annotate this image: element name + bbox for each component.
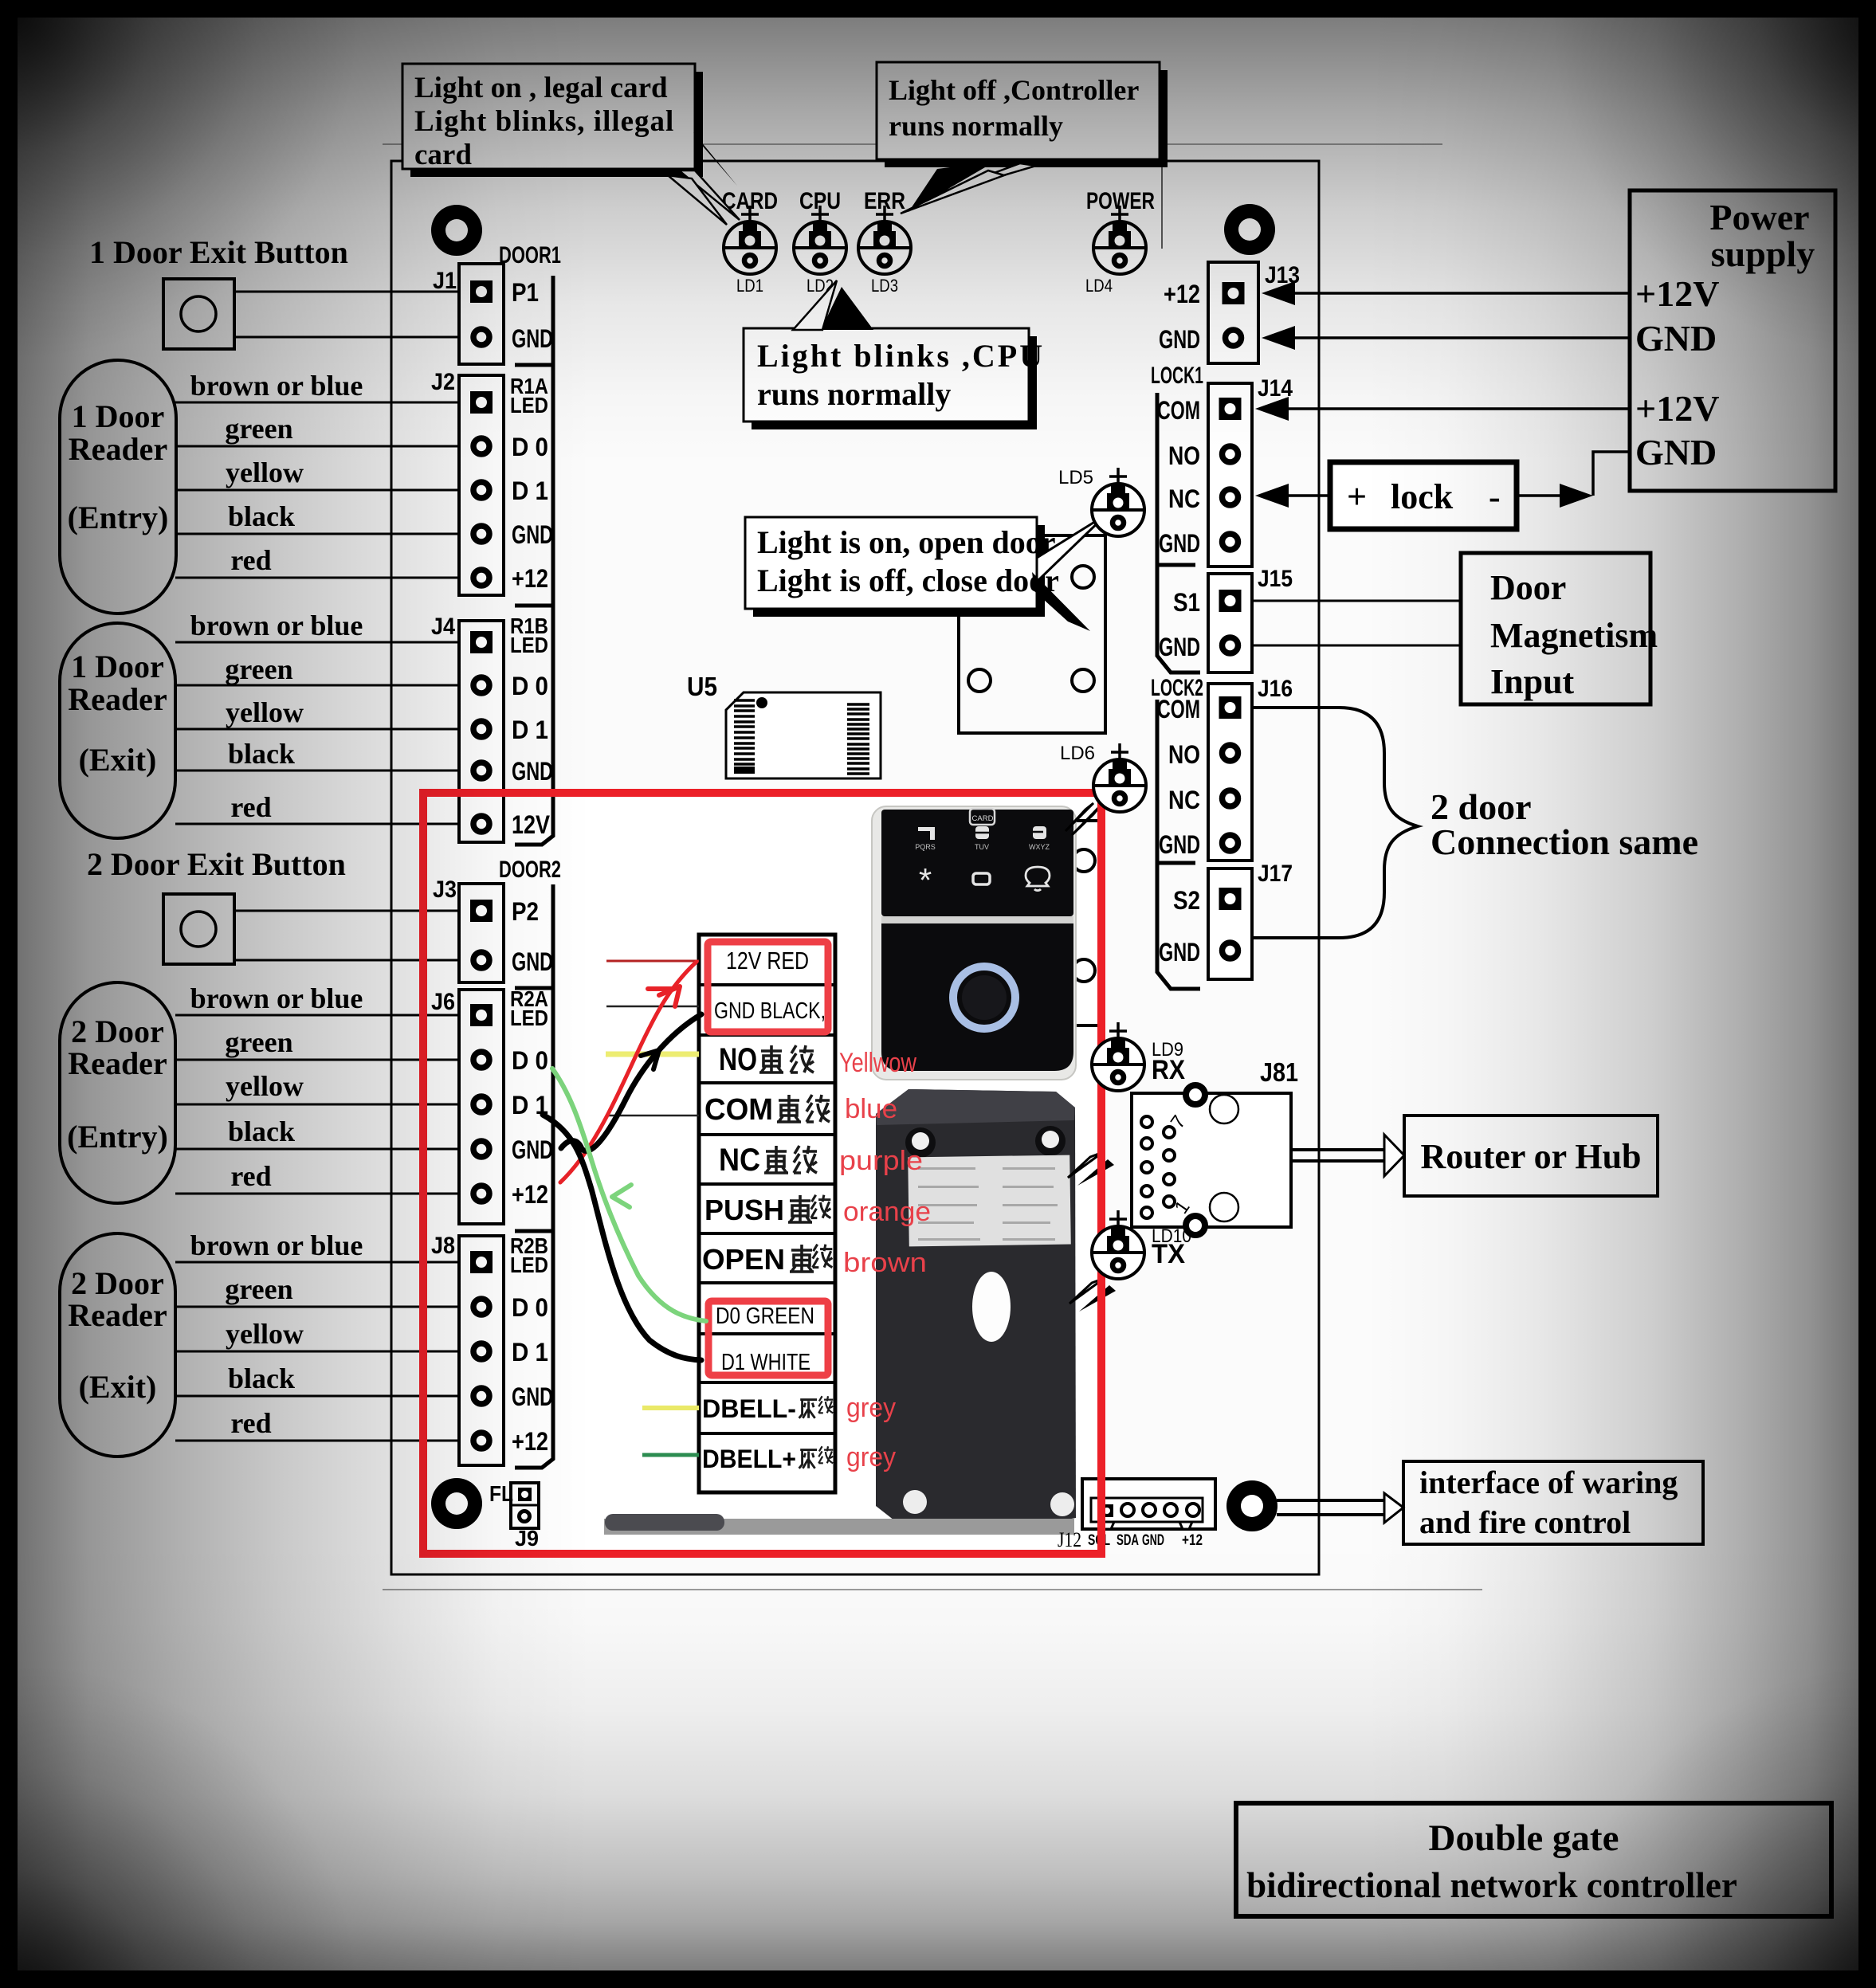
- svg-text:DOOR2: DOOR2: [499, 857, 561, 883]
- svg-text:TUV: TUV: [975, 843, 989, 851]
- svg-text:red: red: [230, 1160, 271, 1192]
- svg-text:yellow: yellow: [226, 1318, 304, 1350]
- svg-text:green: green: [225, 1026, 292, 1058]
- svg-text:GND: GND: [1635, 318, 1717, 359]
- svg-text:GND: GND: [1159, 938, 1200, 967]
- svg-text:brown or blue: brown or blue: [190, 610, 363, 641]
- svg-text:LOCK1: LOCK1: [1151, 363, 1203, 389]
- svg-text:Connection same: Connection same: [1431, 821, 1698, 862]
- svg-text:Reader: Reader: [68, 1297, 167, 1333]
- svg-text:+12: +12: [512, 564, 548, 593]
- svg-text:J6: J6: [431, 989, 455, 1015]
- svg-text:FL: FL: [489, 1481, 513, 1506]
- svg-text:NC: NC: [719, 1143, 760, 1178]
- svg-text:GND: GND: [512, 1382, 553, 1411]
- svg-text:GND: GND: [1142, 1532, 1164, 1549]
- svg-text:Light off ,Controller: Light off ,Controller: [889, 74, 1139, 106]
- svg-text:2 Door: 2 Door: [71, 1265, 164, 1301]
- svg-text:Magnetism: Magnetism: [1490, 616, 1658, 655]
- svg-text:PQRS: PQRS: [915, 843, 936, 851]
- svg-text:1 Door Exit Button: 1 Door Exit Button: [89, 234, 348, 270]
- svg-text:black: black: [228, 500, 295, 532]
- svg-text:LED: LED: [510, 1253, 548, 1277]
- svg-text:RX: RX: [1152, 1055, 1185, 1085]
- svg-text:black: black: [228, 738, 295, 770]
- svg-text:black: black: [228, 1363, 295, 1394]
- svg-text:P2: P2: [512, 897, 539, 926]
- svg-text:GND: GND: [1159, 529, 1200, 558]
- svg-text:LD1: LD1: [736, 276, 763, 296]
- svg-text:WXYZ: WXYZ: [1029, 843, 1050, 851]
- svg-text:Light blinks, illegal: Light blinks, illegal: [414, 105, 674, 138]
- svg-text:J1: J1: [433, 268, 457, 294]
- svg-text:green: green: [225, 1273, 292, 1305]
- svg-text:Reader: Reader: [69, 431, 167, 467]
- svg-text:yellow: yellow: [226, 696, 304, 728]
- svg-text:COM: COM: [704, 1093, 773, 1127]
- svg-text:black: black: [228, 1116, 295, 1147]
- svg-text:LED: LED: [510, 1006, 548, 1030]
- svg-text:2 Door Exit Button: 2 Door Exit Button: [87, 846, 346, 882]
- svg-text:+12: +12: [512, 1180, 548, 1209]
- svg-text:J12: J12: [1058, 1528, 1081, 1551]
- svg-text:+12V: +12V: [1635, 273, 1719, 314]
- svg-text:GND: GND: [512, 947, 553, 976]
- svg-text:blue: blue: [845, 1094, 897, 1124]
- svg-text:+12V: +12V: [1635, 388, 1719, 429]
- svg-text:J16: J16: [1258, 676, 1293, 702]
- svg-text:12V: 12V: [512, 810, 551, 839]
- svg-text:DOOR1: DOOR1: [499, 242, 561, 269]
- svg-text:GND: GND: [512, 1135, 553, 1164]
- svg-text:grey: grey: [846, 1393, 896, 1423]
- svg-text:red: red: [230, 791, 271, 823]
- svg-text:+: +: [1347, 477, 1367, 516]
- svg-text:+12: +12: [1182, 1532, 1203, 1549]
- svg-text:DBELL+: DBELL+: [702, 1445, 796, 1473]
- svg-text:OPEN: OPEN: [702, 1243, 785, 1276]
- svg-text:D0 GREEN: D0 GREEN: [716, 1304, 814, 1329]
- svg-text:runs normally: runs normally: [889, 110, 1063, 142]
- svg-text:J17: J17: [1258, 861, 1293, 887]
- svg-text:S2: S2: [1173, 886, 1200, 915]
- svg-text:supply: supply: [1711, 233, 1815, 274]
- svg-text:D 0: D 0: [512, 1293, 548, 1322]
- svg-text:J4: J4: [431, 614, 455, 640]
- svg-text:purple: purple: [839, 1146, 923, 1176]
- svg-text:Light is off, close door: Light is off, close door: [757, 563, 1059, 598]
- svg-text:Light is on, open door: Light is on, open door: [757, 524, 1056, 560]
- svg-text:Double gate: Double gate: [1429, 1817, 1619, 1859]
- svg-text:NO: NO: [1168, 740, 1200, 769]
- svg-text:LED: LED: [510, 633, 548, 657]
- svg-text:card: card: [414, 139, 472, 171]
- svg-text:LED: LED: [510, 393, 548, 418]
- svg-text:GND BLACK,: GND BLACK,: [714, 998, 826, 1024]
- svg-text:2 Door: 2 Door: [71, 1014, 164, 1049]
- svg-text:Reader: Reader: [68, 1045, 167, 1081]
- svg-text:SDA: SDA: [1117, 1532, 1139, 1549]
- svg-text:Reader: Reader: [68, 681, 167, 717]
- svg-text:D 1: D 1: [512, 476, 548, 505]
- svg-text:brown or blue: brown or blue: [190, 370, 363, 402]
- svg-text:LD3: LD3: [871, 276, 898, 296]
- svg-text:COM: COM: [1157, 695, 1200, 723]
- svg-text:TX: TX: [1152, 1239, 1185, 1269]
- svg-text:*: *: [919, 861, 932, 899]
- svg-text:NO: NO: [1168, 441, 1200, 470]
- svg-text:green: green: [225, 653, 292, 685]
- svg-text:J2: J2: [431, 369, 455, 395]
- svg-text:D 0: D 0: [512, 1046, 548, 1075]
- svg-text:1 Door: 1 Door: [71, 649, 164, 684]
- svg-text:brown or blue: brown or blue: [190, 1229, 363, 1261]
- svg-text:green: green: [225, 413, 292, 445]
- svg-text:bidirectional network controll: bidirectional network controller: [1246, 1865, 1737, 1905]
- svg-text:GND: GND: [1159, 633, 1200, 661]
- svg-text:-: -: [1489, 477, 1501, 516]
- svg-text:(Entry): (Entry): [68, 500, 169, 535]
- svg-text:Input: Input: [1490, 662, 1575, 701]
- svg-text:1 Door: 1 Door: [72, 398, 165, 434]
- svg-text:D1 WHITE: D1 WHITE: [721, 1350, 810, 1375]
- svg-text:PUSH: PUSH: [704, 1194, 784, 1226]
- svg-text:J9: J9: [515, 1526, 539, 1551]
- svg-text:(Entry): (Entry): [67, 1119, 168, 1155]
- svg-text:red: red: [230, 544, 271, 576]
- svg-text:(Exit): (Exit): [79, 1369, 157, 1405]
- svg-text:Light blinks ,CPU: Light blinks ,CPU: [757, 338, 1045, 374]
- svg-text:LD4: LD4: [1085, 276, 1113, 296]
- svg-text:yellow: yellow: [226, 457, 304, 488]
- svg-text:GND: GND: [512, 520, 553, 549]
- svg-text:D 0: D 0: [512, 433, 548, 461]
- svg-text:lock: lock: [1391, 477, 1454, 516]
- svg-text:(Exit): (Exit): [79, 742, 157, 778]
- svg-text:Door: Door: [1490, 568, 1566, 607]
- svg-text:brown or blue: brown or blue: [190, 982, 363, 1014]
- svg-text:orange: orange: [843, 1197, 931, 1227]
- svg-text:12V RED: 12V RED: [726, 947, 809, 974]
- svg-text:Router or Hub: Router or Hub: [1420, 1137, 1641, 1176]
- svg-text:LD5: LD5: [1058, 467, 1093, 488]
- svg-text:J15: J15: [1258, 566, 1293, 592]
- svg-text:S1: S1: [1173, 588, 1200, 617]
- svg-text:D 1: D 1: [512, 1338, 548, 1367]
- svg-text:CARD: CARD: [972, 814, 994, 823]
- svg-text:COM: COM: [1157, 396, 1200, 425]
- svg-text:D 0: D 0: [512, 672, 548, 700]
- svg-text:J8: J8: [431, 1233, 455, 1259]
- svg-text:GND: GND: [512, 757, 553, 786]
- svg-text:D 1: D 1: [512, 716, 548, 744]
- svg-text:DBELL-: DBELL-: [702, 1394, 796, 1423]
- svg-text:brown: brown: [843, 1248, 927, 1278]
- svg-text:+12: +12: [512, 1427, 548, 1456]
- svg-text:NC: NC: [1168, 786, 1200, 814]
- svg-text:GND: GND: [1159, 830, 1200, 859]
- svg-text:interface of waring: interface of waring: [1419, 1465, 1678, 1500]
- svg-text:J81: J81: [1260, 1057, 1298, 1087]
- svg-text:Power: Power: [1709, 197, 1809, 237]
- svg-text:grey: grey: [846, 1442, 896, 1472]
- svg-text:+12: +12: [1164, 280, 1200, 308]
- svg-text:Light on , legal card: Light on , legal card: [414, 72, 668, 104]
- svg-text:runs normally: runs normally: [757, 376, 951, 412]
- svg-text:U5: U5: [687, 672, 717, 701]
- svg-text:GND: GND: [1635, 432, 1717, 472]
- svg-text:LD6: LD6: [1060, 743, 1095, 764]
- svg-text:P1: P1: [512, 278, 539, 307]
- svg-text:NC: NC: [1168, 484, 1200, 513]
- svg-text:GND: GND: [512, 324, 553, 353]
- svg-text:yellow: yellow: [226, 1070, 304, 1102]
- svg-text:J3: J3: [433, 876, 457, 903]
- svg-text:red: red: [230, 1407, 271, 1439]
- svg-text:GND: GND: [1159, 325, 1200, 354]
- svg-text:and fire control: and fire control: [1419, 1504, 1631, 1540]
- svg-text:Yellwow: Yellwow: [839, 1048, 916, 1078]
- svg-text:NO: NO: [719, 1042, 757, 1077]
